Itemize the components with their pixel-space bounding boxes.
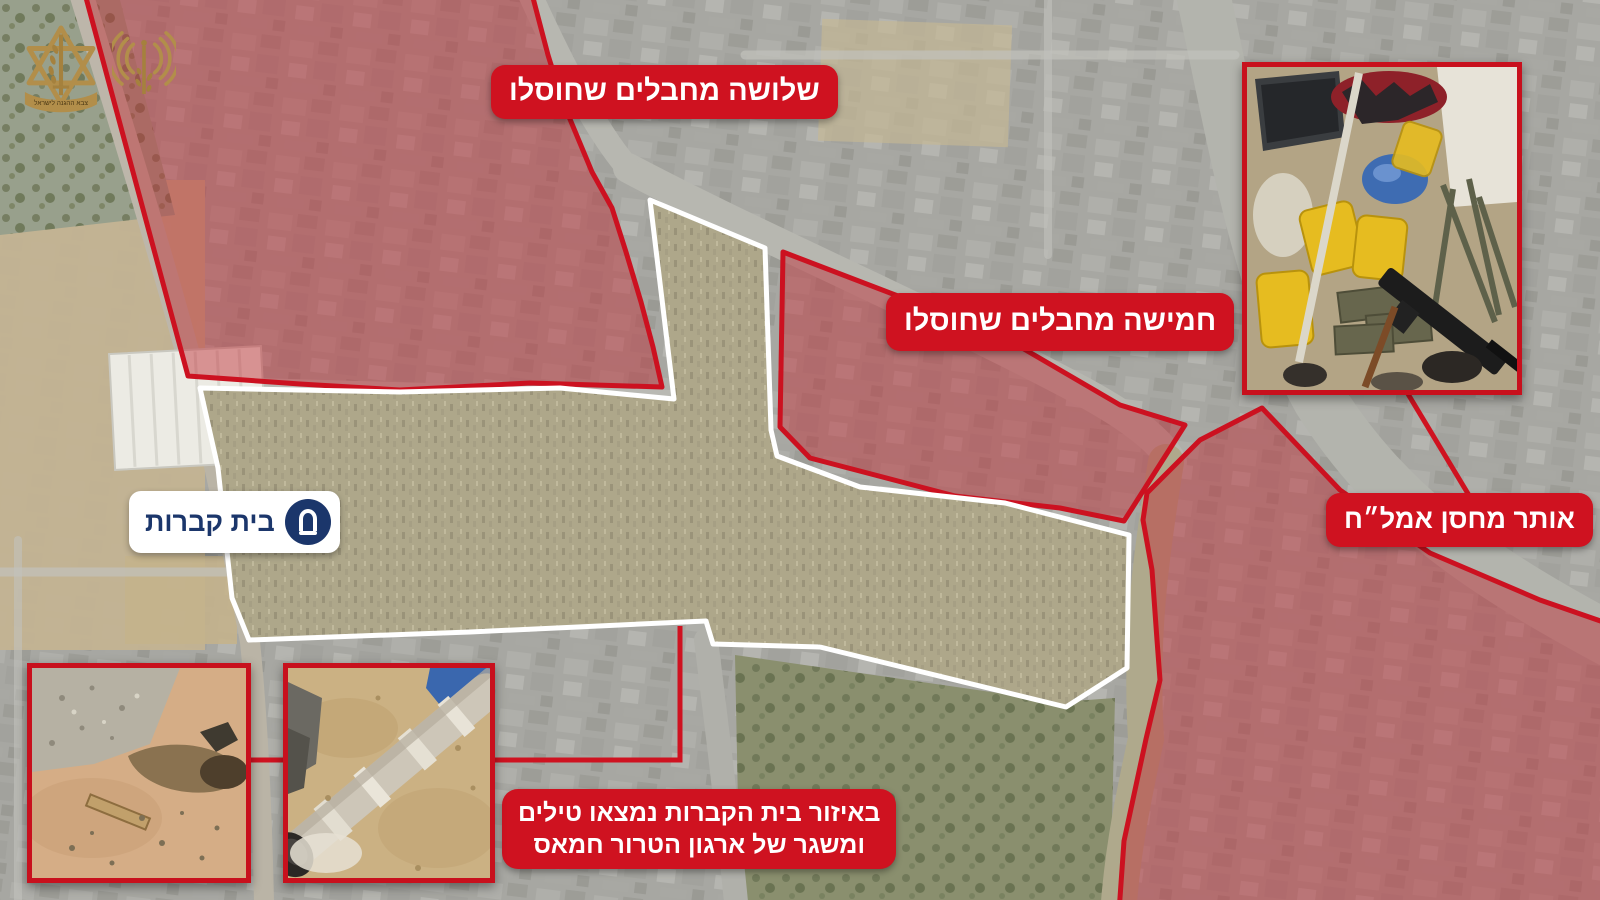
tombstone-icon [285,499,331,545]
bottom-caption-line1: באיזור בית הקברות נמצאו טילים [518,797,880,829]
cemetery-label: בית קברות [129,491,340,553]
zone-middle-label: חמישה מחבלים שחוסלו [886,293,1234,351]
cemetery-label-text: בית קברות [145,507,275,538]
header-logos: צבא ההגנה לישראל [20,22,176,116]
impact-crater-photo [27,663,251,883]
idf-emblem: צבא ההגנה לישראל [20,22,102,116]
map-canvas: צבא ההגנה לישראל שלושה מחבלים שחוסלו חמי… [0,0,1600,900]
buried-rocket-photo [283,663,495,883]
sand-lot-2 [818,19,1012,148]
zone-top-left-label: שלושה מחבלים שחוסלו [491,65,838,119]
weapons-depot-label: אותר מחסן אמל״ח [1326,493,1593,547]
emblem-banner-text: צבא ההגנה לישראל [34,99,88,107]
bottom-caption-line2: ומשגר של ארגון הטרור חמאס [533,829,865,861]
idf-spokesperson-emblem [112,22,176,112]
weapons-cache-photo [1242,62,1522,395]
bottom-caption: באיזור בית הקברות נמצאו טילים ומשגר של א… [502,789,896,869]
